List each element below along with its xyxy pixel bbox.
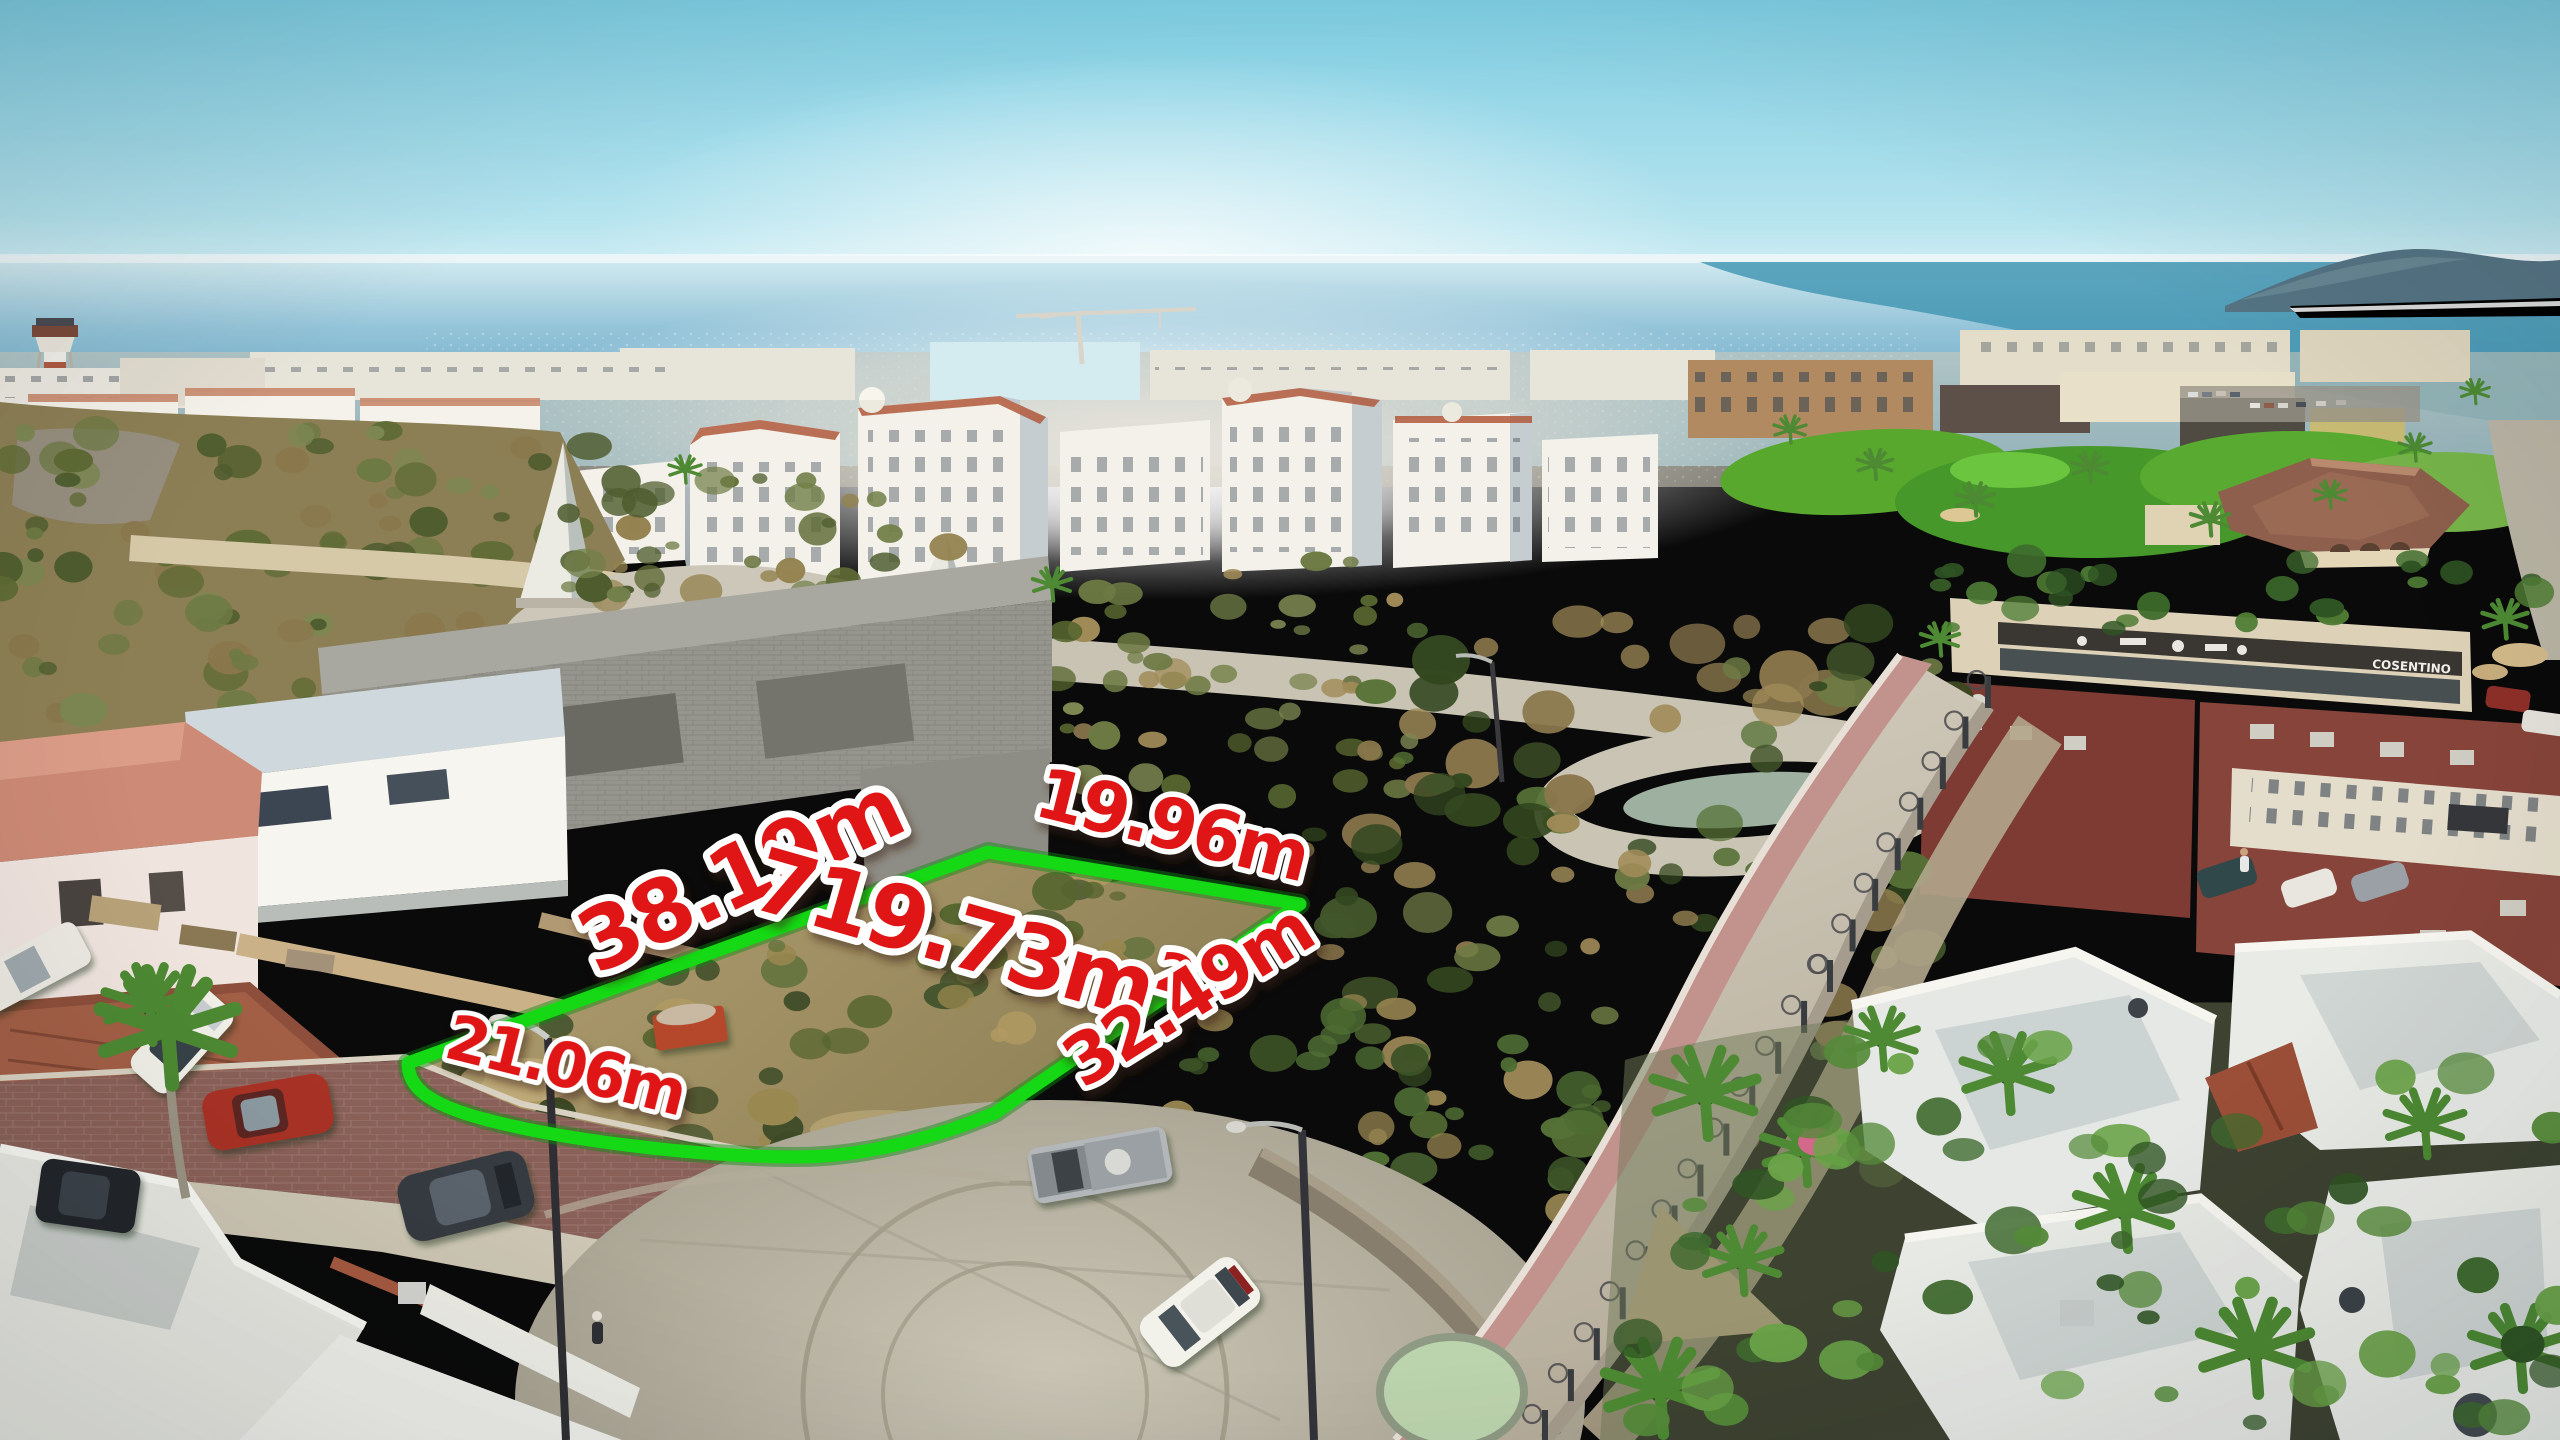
aerial-photo: COSENTINO: [0, 0, 2560, 1440]
vignette: [0, 0, 2560, 1440]
scene-canvas: COSENTINO: [0, 0, 2560, 1440]
